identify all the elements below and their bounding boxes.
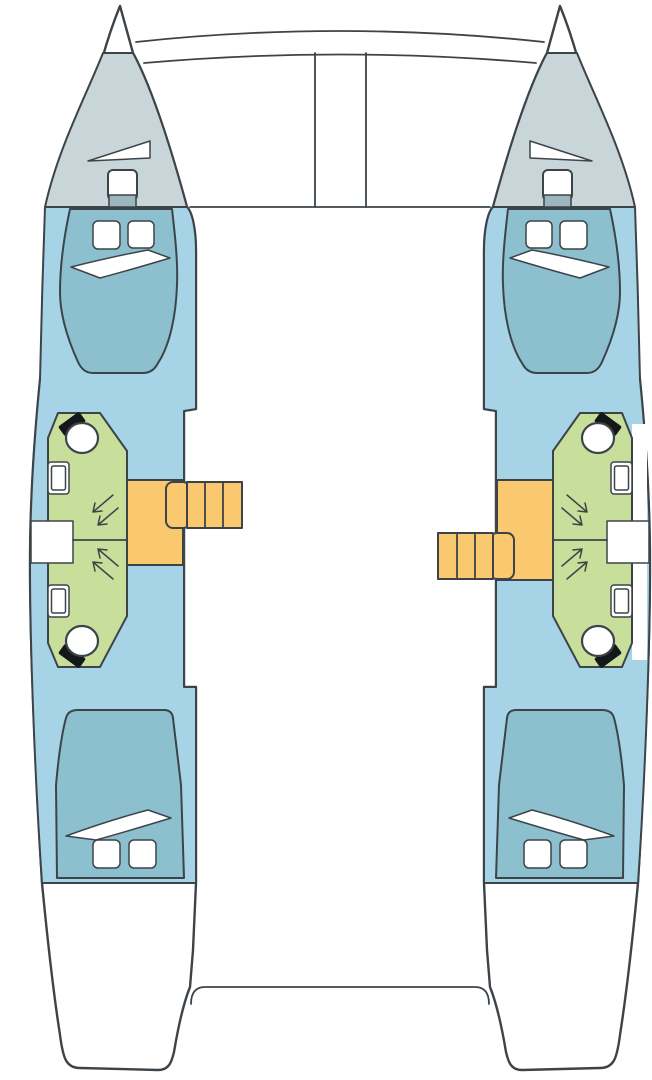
port-aft-cabin-hatch-icon [93, 840, 120, 868]
starboard-forward-sink-basin [615, 466, 629, 490]
starboard-outboard-shower-gap [607, 521, 649, 563]
starboard-windlass-box-icon [544, 195, 571, 207]
deck-plan-svg [0, 0, 652, 1080]
port-windlass-box-icon [109, 195, 136, 207]
starboard-forward-cabin-hatch-icon [560, 221, 587, 249]
crossbeam-aft-edge [144, 55, 536, 64]
port-forward-toilet-bowl-icon [66, 423, 98, 453]
port-forward-cabin-hatch-icon [93, 221, 120, 249]
port-forward-cabin-hatch-icon [128, 221, 154, 248]
aft-platform-edge [191, 987, 489, 1004]
catamaran-deck-plan [0, 0, 652, 1080]
port-aft-toilet-bowl-icon [66, 626, 98, 656]
starboard-aft-sink-basin [615, 589, 629, 613]
port-aft-cabin-hatch-icon [129, 840, 156, 868]
starboard-aft-cabin-hatch-icon [524, 840, 551, 868]
starboard-aft-sink-icon [611, 585, 632, 617]
port-aft-sink-basin [52, 589, 66, 613]
foredeck-rigging [136, 31, 544, 207]
starboard-forward-toilet-bowl-icon [582, 423, 614, 453]
starboard-forward-sink-icon [611, 462, 632, 494]
port-hull [30, 6, 242, 1070]
starboard-stairs-treads [438, 533, 493, 579]
port-stairs-treads [187, 482, 242, 528]
starboard-aft-toilet-bowl-icon [582, 626, 614, 656]
port-forward-sink-icon [48, 462, 69, 494]
port-outboard-shower-gap [31, 521, 73, 563]
crossbeam-forward-edge [136, 31, 544, 42]
port-forward-sink-basin [52, 466, 66, 490]
starboard-aft-cabin-hatch-icon [560, 840, 587, 868]
starboard-hull [438, 6, 650, 1070]
starboard-forward-cabin-hatch-icon [526, 221, 552, 248]
port-aft-sink-icon [48, 585, 69, 617]
